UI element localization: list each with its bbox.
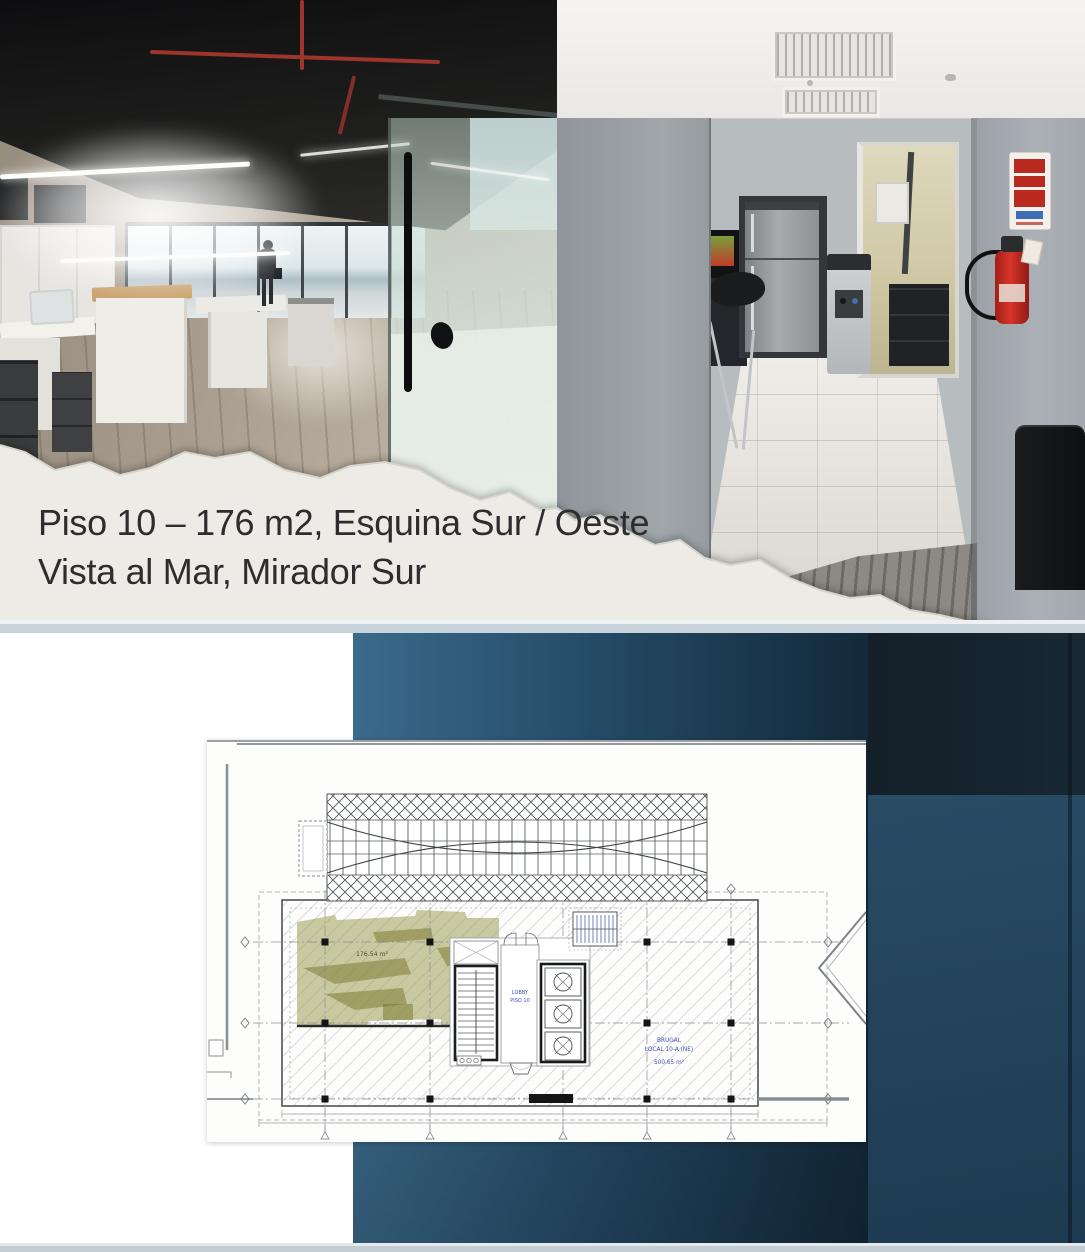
dark-corner-panel <box>868 633 1085 795</box>
caption: Piso 10 – 176 m2, Esquina Sur / Oeste Vi… <box>38 498 649 596</box>
water-cooler <box>827 254 871 374</box>
screen-picture <box>710 236 734 266</box>
door-handle <box>404 152 412 392</box>
canopy-structure <box>299 794 707 901</box>
floor-plan-card: 176.54 m² <box>207 740 866 1142</box>
service-doorway <box>857 142 959 378</box>
lobby-label-2: PISO 10 <box>510 998 530 1004</box>
slide: Piso 10 – 176 m2, Esquina Sur / Oeste Vi… <box>0 0 1085 1252</box>
panel-seam <box>1068 633 1072 1252</box>
smoke-detector <box>945 74 956 81</box>
floorplan-section: 176.54 m² <box>0 633 1085 1252</box>
elevator-bank <box>541 964 585 1062</box>
extinguisher-sign <box>1009 152 1051 230</box>
tenant-label-1: BRUGAL <box>657 1038 682 1044</box>
ac-vent <box>775 32 893 78</box>
caption-line-2: Vista al Mar, Mirador Sur <box>38 547 649 596</box>
ac-vent <box>785 90 877 114</box>
lobby <box>501 945 539 1063</box>
slide-bottom-strip <box>0 1243 1085 1252</box>
caption-line-1: Piso 10 – 176 m2, Esquina Sur / Oeste <box>38 498 649 547</box>
lobby-label-1: LOBBY <box>512 990 529 996</box>
copier <box>288 298 334 366</box>
section-divider <box>0 620 1085 633</box>
tenant-label-2: LOCAL 10-A (NE) <box>645 1047 693 1053</box>
extinguisher-label <box>999 284 1025 302</box>
sprinkler <box>807 80 813 86</box>
sprinkler-pipe <box>300 0 304 70</box>
extinguisher-valve <box>1001 236 1023 252</box>
floor-plan-drawing: 176.54 m² <box>207 742 866 1142</box>
unit-area-label: 176.54 m² <box>356 951 389 958</box>
tenant-label-3: 500.65 m² <box>654 1059 684 1066</box>
